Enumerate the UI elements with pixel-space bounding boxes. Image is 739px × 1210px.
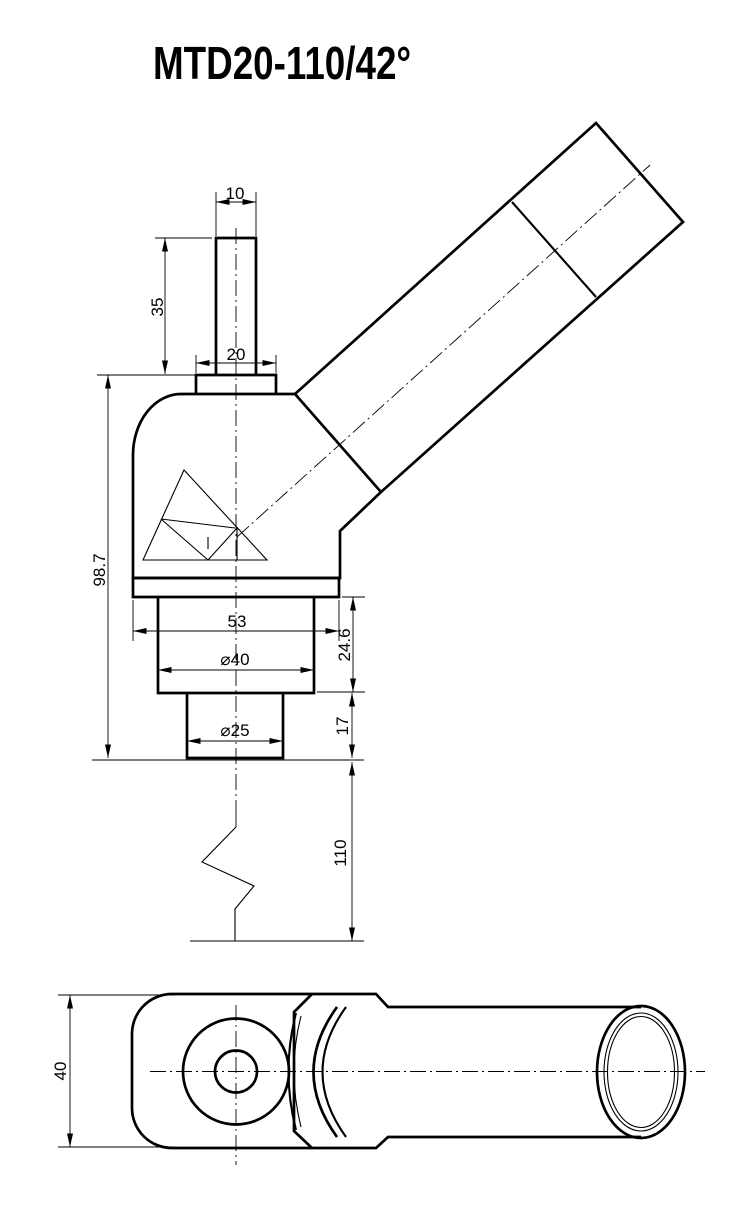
dim-stem-width-label: 10 <box>226 184 245 203</box>
front-view: 10 35 20 98.7 53 ⌀40 <box>90 123 683 941</box>
prism <box>143 470 267 560</box>
top-dimensions: 40 <box>51 995 175 1147</box>
prism-ray-v <box>161 519 237 560</box>
break-symbol <box>202 827 254 941</box>
tube-axis-centerline <box>237 165 650 537</box>
dim-stem-height-label: 35 <box>148 298 167 317</box>
top-outline <box>132 994 641 1148</box>
drawing-sheet: MTD20-110/42° <box>0 0 739 1210</box>
drawing-canvas: 10 35 20 98.7 53 ⌀40 <box>0 0 739 1210</box>
dim-lower-cylinder-dia-label: ⌀25 <box>220 721 249 740</box>
prism-triangle <box>143 470 267 560</box>
body-outline <box>133 394 381 578</box>
tube-rim-ellipse-inner <box>608 1017 675 1128</box>
dim-collar-width-label: 20 <box>227 345 246 364</box>
top-view: 40 <box>51 994 705 1165</box>
dim-upper-cylinder-height-label: 24.6 <box>335 628 354 661</box>
dim-overall-height-label: 98.7 <box>90 553 109 586</box>
prism-ray-top <box>161 519 235 528</box>
dim-lower-cylinder-height-label: 17 <box>333 717 352 736</box>
dim-plate-width-label: 53 <box>228 612 247 631</box>
front-dimensions: 10 35 20 98.7 53 ⌀40 <box>90 184 365 941</box>
dim-upper-cylinder-dia-label: ⌀40 <box>220 650 249 669</box>
tube-end-ellipse <box>597 1006 685 1138</box>
tube-outline <box>295 123 683 492</box>
tube-rim-ellipse-outer <box>604 1013 678 1131</box>
top-body-right-edge <box>294 994 312 1148</box>
ext-lines-110 <box>92 760 364 941</box>
tube-joint-line <box>512 202 596 297</box>
dim-post-length-label: 110 <box>331 839 350 866</box>
dim-body-width-label: 40 <box>51 1062 70 1081</box>
ext-lines-40 <box>58 995 175 1147</box>
